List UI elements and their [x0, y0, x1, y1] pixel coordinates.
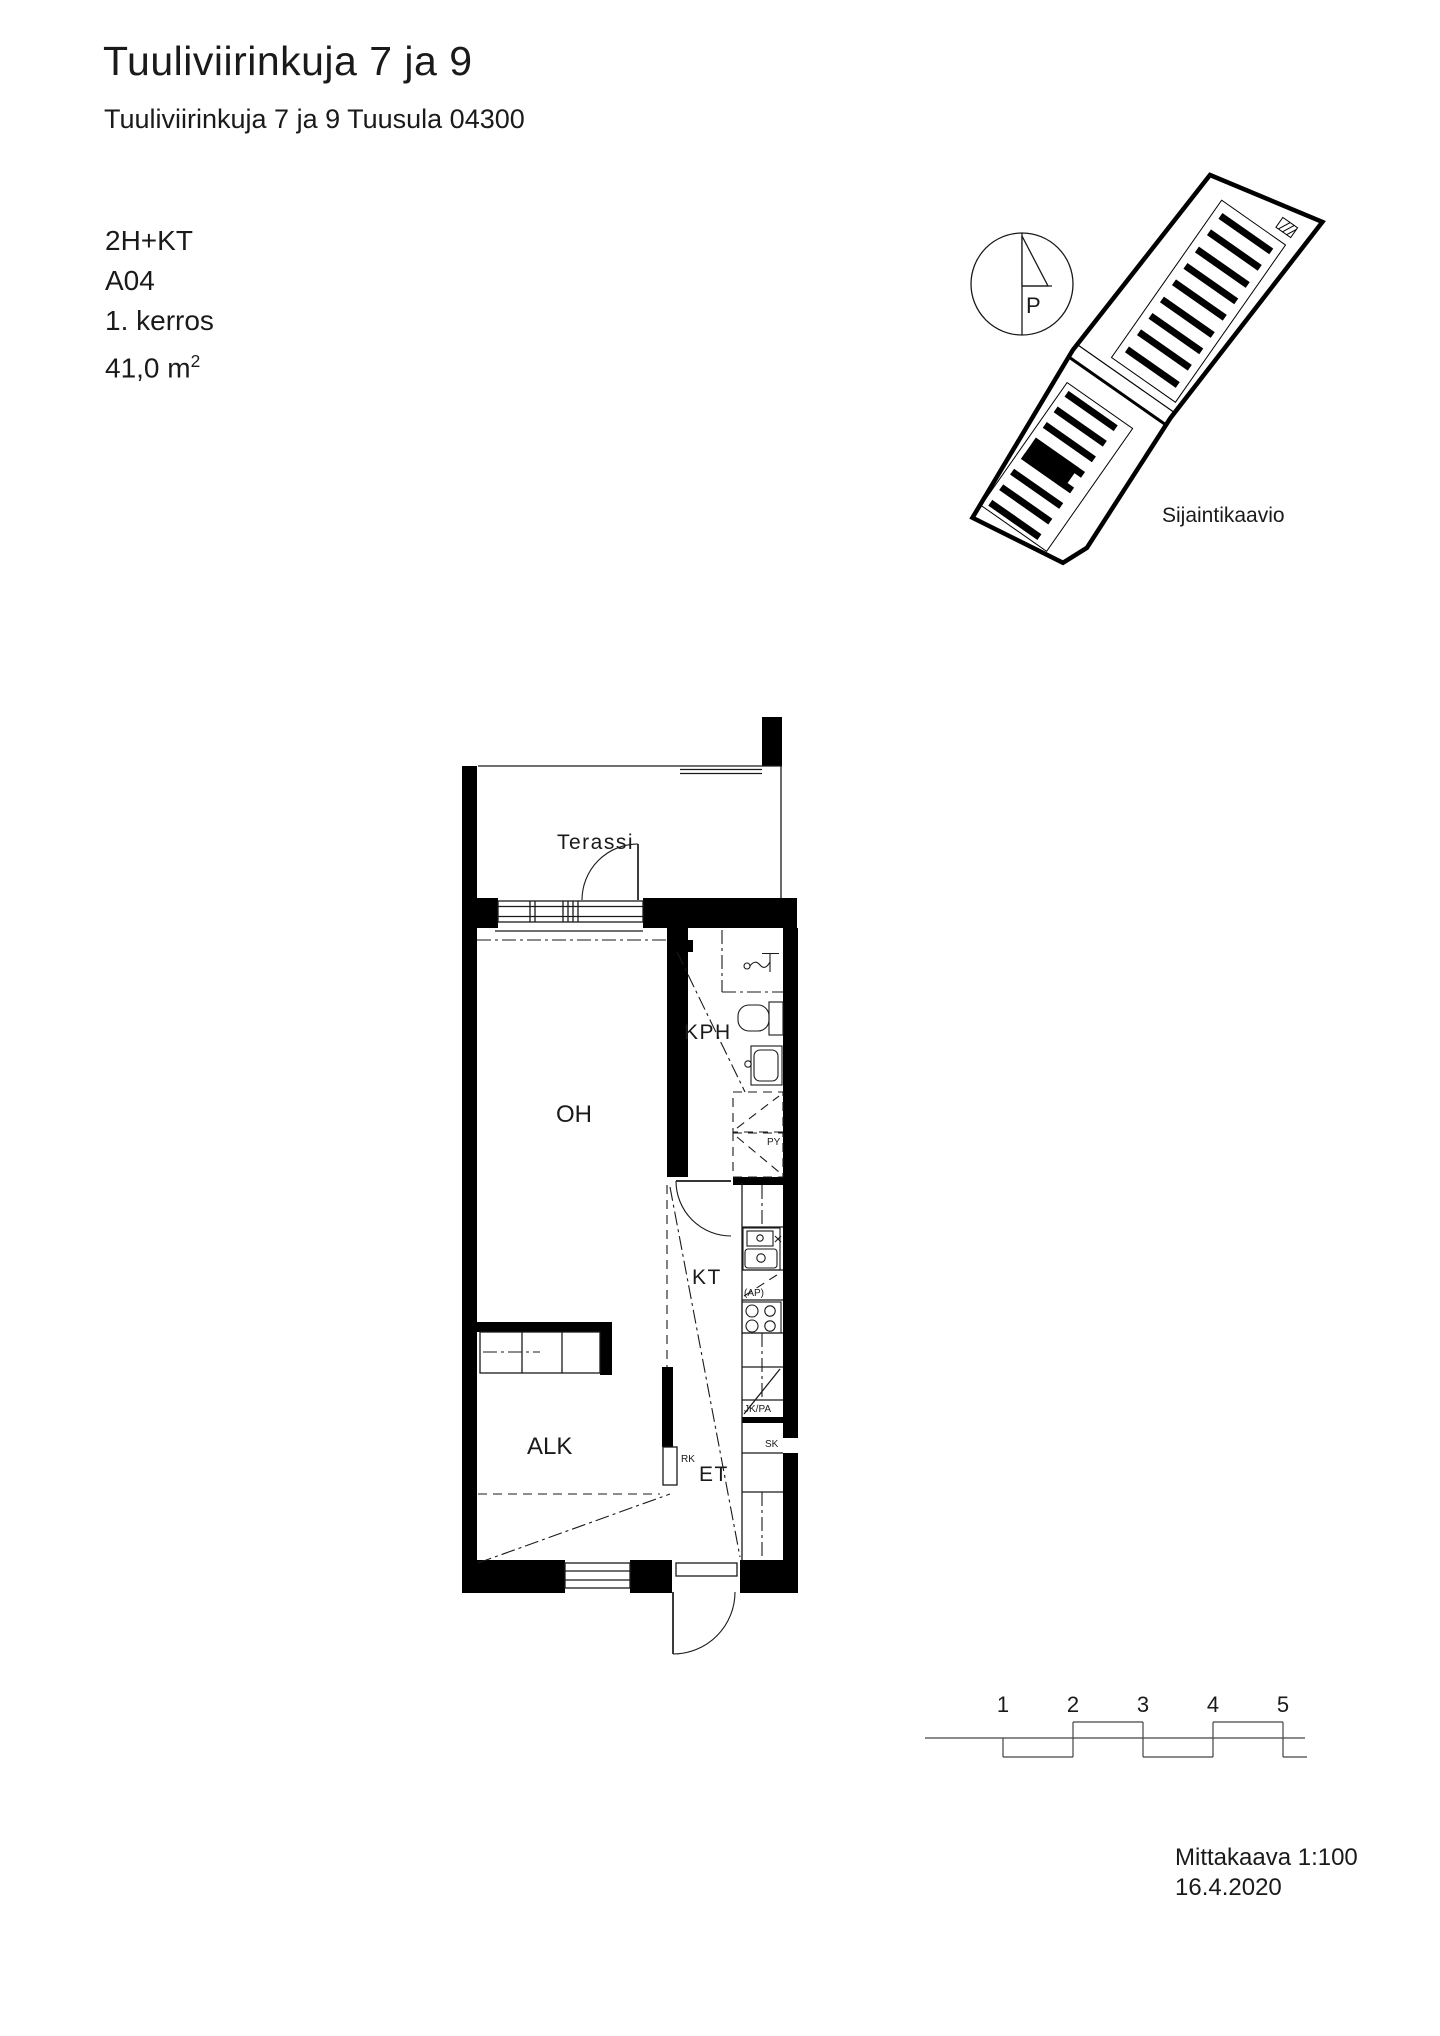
bottom-window: [565, 1563, 630, 1588]
entry-door-arc: [673, 1592, 735, 1654]
wall-bottom-mid: [630, 1560, 672, 1593]
wall-left-exterior: [462, 766, 477, 1593]
apartment-area: 41,0 m2: [105, 341, 214, 388]
kph-door-arc: [676, 1181, 731, 1236]
scale-tick-2: 2: [1067, 1692, 1079, 1717]
terrace-window: [498, 901, 643, 922]
wall-stub-top-right: [762, 717, 782, 766]
room-label-kph: KPH: [684, 1021, 732, 1044]
label-sk: SK: [765, 1439, 779, 1450]
room-label-alk: ALK: [527, 1433, 572, 1460]
wall-right-exterior: [783, 928, 798, 1438]
scale-tick-3: 3: [1137, 1692, 1149, 1717]
wall-kph-north: [643, 898, 797, 928]
wall-bottom-right: [740, 1560, 797, 1593]
footer-date: 16.4.2020: [1175, 1873, 1358, 1903]
page-title: Tuuliviirinkuja 7 ja 9: [103, 38, 473, 85]
page-subtitle: Tuuliviirinkuja 7 ja 9 Tuusula 04300: [104, 104, 525, 135]
rk-cabinet: [663, 1447, 677, 1485]
apartment-unit: A04: [105, 261, 214, 301]
label-jkpa: JK/PA: [744, 1404, 771, 1415]
label-rk: RK: [681, 1454, 695, 1465]
wall-et-stub: [662, 1367, 673, 1447]
scale-tick-1: 1: [997, 1692, 1009, 1717]
footer-block: Mittakaava 1:100 16.4.2020: [1175, 1843, 1358, 1903]
wall-kph-south: [733, 1177, 783, 1185]
scale-tick-5: 5: [1277, 1692, 1289, 1717]
scale-tick-4: 4: [1207, 1692, 1219, 1717]
room-label-terassi: Terassi: [557, 831, 634, 854]
footer-scale: Mittakaava 1:100: [1175, 1843, 1358, 1873]
room-label-oh: OH: [556, 1101, 592, 1128]
toilet: [738, 1002, 783, 1035]
apartment-floor: 1. kerros: [105, 301, 214, 341]
scale-bar-lines: [925, 1722, 1307, 1757]
apartment-info: 2H+KT A04 1. kerros 41,0 m2: [105, 221, 214, 388]
scale-bar: 1 2 3 4 5: [915, 1685, 1315, 1765]
label-ap: (AP): [744, 1288, 764, 1299]
label-py: PY: [767, 1137, 781, 1148]
wall-bottom-left: [462, 1560, 565, 1593]
site-divider: [1068, 344, 1174, 425]
apartment-layout: 2H+KT: [105, 221, 214, 261]
area-superscript: 2: [191, 351, 201, 371]
kitchen-sink: [743, 1228, 781, 1270]
site-caption: Sijaintikaavio: [1162, 504, 1285, 528]
room-label-et: ET: [699, 1463, 729, 1486]
washbasin: [745, 1046, 782, 1085]
scale-bar-numbers: 1 2 3 4 5: [997, 1692, 1289, 1717]
floor-plan: Terassi OH KPH KT ALK ET RK PY (AP) JK/P…: [450, 705, 820, 1665]
wall-partition-kph: [667, 928, 688, 1177]
wall-alk-stub: [473, 1322, 612, 1332]
counter-divider: [742, 1417, 783, 1423]
stove: [742, 1302, 781, 1333]
kph-faucet: [744, 953, 779, 972]
site-hatch-box: [1276, 217, 1298, 237]
dashed-lines: [478, 1092, 783, 1494]
dashdot-lines: [477, 930, 783, 1563]
entry-threshold: [676, 1563, 737, 1576]
room-label-kt: KT: [692, 1266, 722, 1289]
